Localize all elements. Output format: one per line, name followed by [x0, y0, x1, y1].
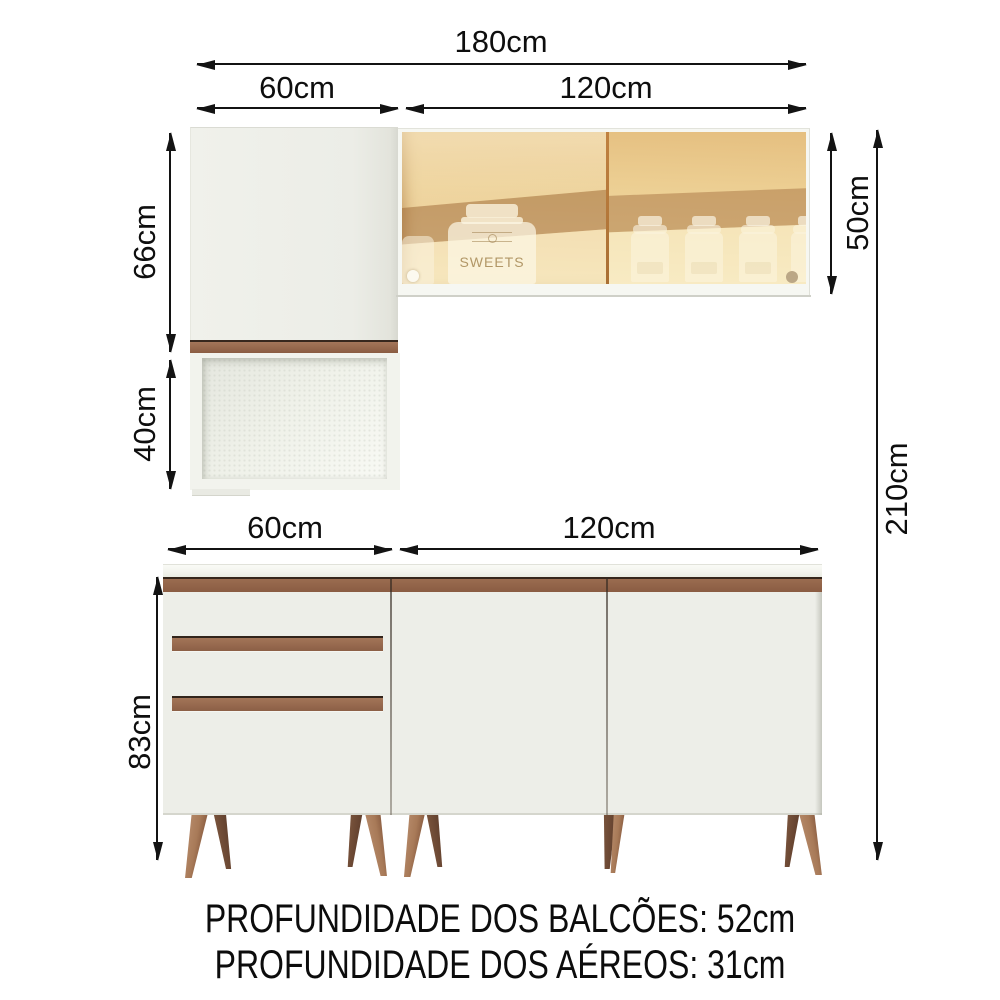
pantry-jar-shoulder — [793, 225, 806, 234]
sweets-jar: SWEETS — [448, 200, 536, 284]
pantry-jar-shoulder — [687, 225, 721, 234]
glass-door-right — [609, 132, 806, 284]
pantry-jar — [631, 216, 669, 282]
dim-label-upper-right-height: 50cm — [840, 143, 876, 283]
cabinet-leg — [363, 815, 394, 876]
pantry-jar-shoulder — [633, 225, 667, 234]
dim-arrow-base-right-width — [400, 548, 818, 550]
wall-cabinet-door — [190, 127, 398, 340]
kitchen-dimension-diagram: 180cm 60cm 120cm 66cm 40cm 83cm 50cm 210… — [0, 0, 1000, 1000]
note-wall-cabinet-depth: PROFUNDIDADE DOS AÉREOS: 31cm — [100, 942, 900, 988]
dim-arrow-base-left-width — [168, 548, 392, 550]
note-counter-depth: PROFUNDIDADE DOS BALCÕES: 52cm — [100, 896, 900, 942]
dim-label-total-width: 180cm — [401, 24, 601, 60]
cabinet-leg — [797, 815, 829, 875]
dim-label-base-height: 83cm — [122, 662, 158, 802]
drawer-handle-strip — [172, 696, 383, 711]
dim-label-base-left-width: 60cm — [205, 510, 365, 546]
dim-arrow-upper-door-height — [169, 133, 171, 352]
cabinet-seam-left — [390, 577, 392, 815]
dim-arrow-total-width — [197, 63, 806, 65]
pantry-jar-body — [791, 232, 806, 282]
pantry-jar — [791, 216, 806, 282]
glass-door-right-knob — [786, 271, 798, 283]
cabinet-leg-back — [343, 815, 364, 867]
dim-label-upper-door-height: 66cm — [127, 172, 163, 312]
pantry-jar — [739, 216, 777, 282]
pantry-jar-body — [739, 232, 777, 282]
countertop-brown-band — [163, 577, 822, 592]
sweets-jar-label: SWEETS — [448, 254, 536, 270]
pantry-jar-label — [691, 262, 717, 274]
cabinet-leg — [397, 815, 427, 877]
pantry-jar-label — [637, 262, 663, 274]
wall-cabinet-open-niche — [190, 353, 400, 490]
sweets-jar-crest — [472, 232, 512, 242]
glass-door-left: SWEETS — [402, 132, 606, 284]
dim-label-total-height: 210cm — [879, 419, 915, 559]
glass-door-left-knob — [407, 270, 419, 282]
countertop — [163, 564, 822, 577]
open-niche-interior — [202, 358, 387, 479]
dim-arrow-niche-height — [169, 360, 171, 489]
dim-label-base-right-width: 120cm — [529, 510, 689, 546]
dim-arrow-total-height — [876, 130, 878, 860]
cabinet-seam-middle — [606, 577, 608, 815]
dim-arrow-upper-left-width — [197, 107, 398, 109]
dim-arrow-upper-right-height — [830, 133, 832, 294]
cabinet-leg-back — [212, 815, 237, 869]
cabinet-leg-back — [425, 815, 447, 867]
wall-cabinet-base-foot — [192, 489, 250, 496]
sweets-jar-lid — [466, 204, 518, 218]
depth-notes: PROFUNDIDADE DOS BALCÕES: 52cm PROFUNDID… — [0, 896, 1000, 988]
dim-label-niche-height: 40cm — [127, 354, 163, 494]
dim-arrow-upper-right-width — [406, 107, 806, 109]
drawer-handle-strip — [172, 636, 383, 651]
pantry-jar-body — [685, 232, 723, 282]
dim-label-upper-right-width: 120cm — [526, 70, 686, 106]
cabinet-leg — [178, 815, 210, 878]
wall-cabinet-door-handle — [190, 340, 398, 353]
dim-label-upper-left-width: 60cm — [217, 70, 377, 106]
pantry-jar-shoulder — [741, 225, 775, 234]
pantry-jar — [685, 216, 723, 282]
pantry-jar-body — [631, 232, 669, 282]
cabinet-leg-back — [780, 815, 801, 867]
pantry-jar-label — [745, 262, 771, 274]
